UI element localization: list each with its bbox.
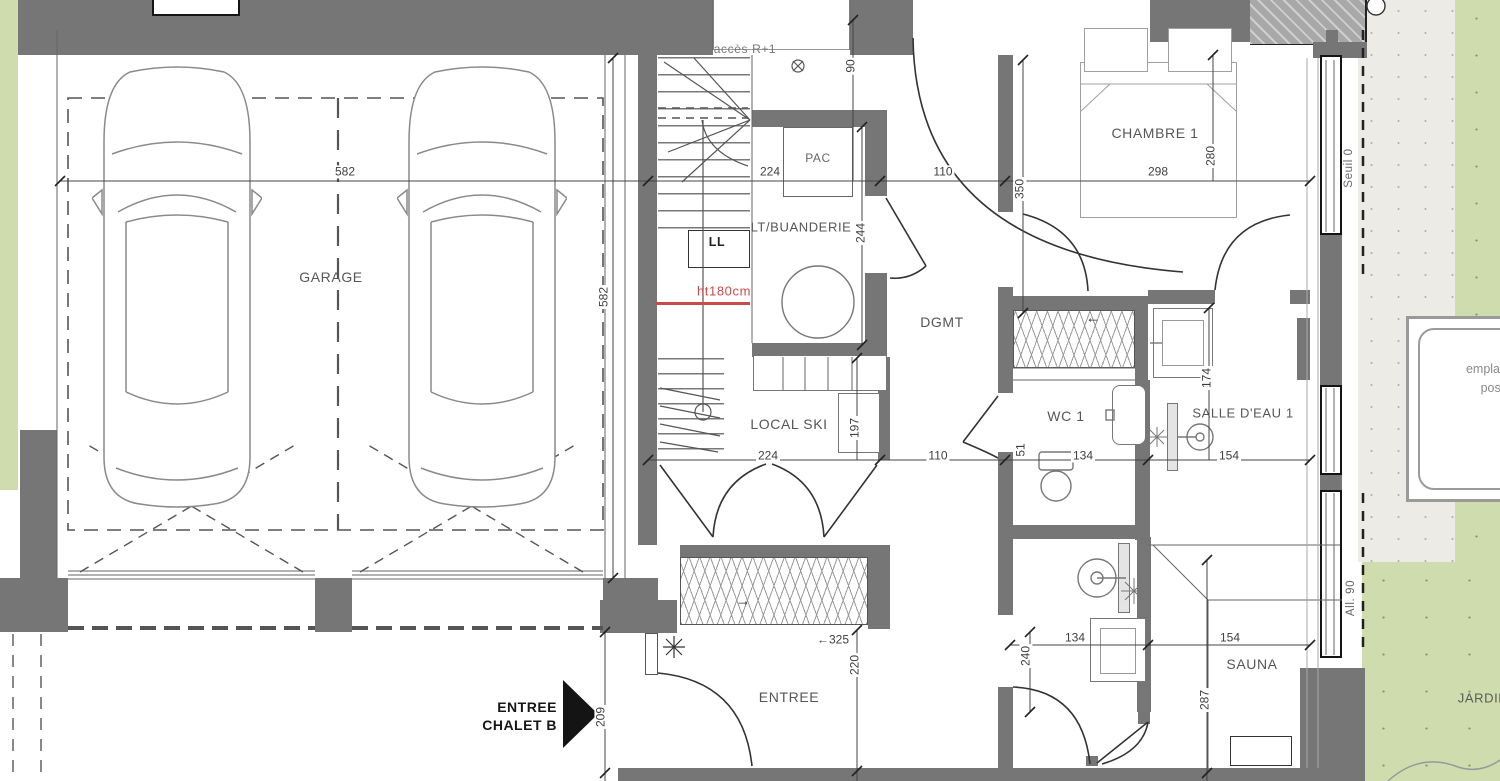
- dim-hall-top: 110: [931, 165, 954, 178]
- floor-plan: emplacement possible o: [0, 0, 1500, 781]
- door-frame: [645, 633, 658, 675]
- wall: [1320, 235, 1342, 385]
- dim-sdb-depth: 174: [1200, 366, 1213, 390]
- window-bay: [152, 0, 240, 16]
- entrance-label-line2: CHALET B: [432, 716, 557, 734]
- wall: [998, 452, 1013, 615]
- staircase-lower: [658, 358, 724, 458]
- wall: [865, 273, 887, 350]
- corridor-closet: [1013, 310, 1135, 368]
- entrance-label-line1: ENTREE: [432, 698, 557, 716]
- dim-hall-bottom: 110: [926, 449, 949, 462]
- wall-closet-top: [1013, 296, 1148, 310]
- ski-shelf: [753, 355, 887, 391]
- dim-drive: 209: [594, 705, 607, 729]
- dim-garage-depth: 582: [597, 285, 610, 309]
- wall: [680, 545, 890, 557]
- allege-label: All. 90: [1345, 580, 1357, 616]
- wall: [1300, 668, 1365, 781]
- wall: [18, 0, 713, 55]
- note-line: possible: [1481, 379, 1500, 398]
- dim-buanderie-depth: 244: [854, 221, 867, 245]
- room-label-garage: GARAGE: [299, 269, 363, 285]
- bath-mirror: [1100, 628, 1136, 674]
- wall: [868, 557, 890, 629]
- dim-garage-width: 582: [333, 165, 357, 178]
- seuil-label: Seuil 0: [1343, 148, 1355, 187]
- wall: [850, 0, 913, 55]
- wall-pier: [1297, 318, 1310, 380]
- room-label-local-ski: LOCAL SKI: [750, 416, 827, 432]
- note-box: emplacement possible o: [1406, 316, 1500, 502]
- dim-door-top: 90: [844, 57, 857, 74]
- shower-glass: [1118, 543, 1130, 613]
- sdb-sink: [1162, 320, 1204, 366]
- room-label-entree: ENTREE: [759, 689, 819, 705]
- dim-ski-depth: 197: [848, 416, 861, 440]
- wall: [1290, 290, 1310, 304]
- pillow: [1084, 28, 1148, 72]
- dim-ski-width: 224: [756, 449, 780, 462]
- arrow-right-icon: →: [736, 593, 751, 610]
- shower-glass: [1167, 403, 1178, 471]
- staircase-upper: [658, 57, 750, 235]
- wall: [1326, 30, 1338, 44]
- dim-wc-width: 134: [1071, 449, 1095, 462]
- dim-buanderie-width: 224: [758, 165, 782, 178]
- room-label-buanderie: LT/BUANDERIE: [751, 220, 852, 235]
- window-salle-eau: [1320, 385, 1342, 475]
- wall: [0, 578, 68, 632]
- height-limit-line: [655, 302, 750, 305]
- ll-label: LL: [709, 235, 725, 249]
- wall: [20, 430, 57, 578]
- room-label-wc1: WC 1: [1047, 408, 1084, 424]
- grass-bottom-right: [1362, 562, 1500, 781]
- height-limit-label: ht180cm: [697, 284, 751, 299]
- dim-chambre-depth: 280: [1204, 144, 1217, 168]
- dim-bath-depth: 240: [1019, 644, 1032, 668]
- dim-chambre-width: 298: [1146, 165, 1170, 178]
- dim-entree-depth: 220: [848, 653, 861, 677]
- dim-wc-offset: 51: [1014, 441, 1027, 458]
- wall: [638, 55, 657, 545]
- wall: [865, 110, 887, 196]
- window-chambre: [1320, 55, 1342, 235]
- arrow-left-icon: ←: [1086, 310, 1101, 327]
- room-label-sauna: SAUNA: [1226, 656, 1277, 672]
- wall-hatched: [1250, 0, 1367, 45]
- wall: [998, 287, 1013, 393]
- note-box-inner: emplacement possible o: [1418, 328, 1500, 490]
- dim-sauna-width: 154: [1218, 631, 1242, 644]
- acces-label: accès R+1: [714, 42, 776, 56]
- dim-sdb-width: 154: [1217, 449, 1241, 462]
- room-label-dgmt: DGMT: [920, 314, 964, 330]
- pillow: [1168, 28, 1232, 72]
- wall: [998, 687, 1013, 781]
- wc-vanity: [1112, 385, 1146, 445]
- wall: [600, 600, 677, 633]
- entrance-label: ENTREE CHALET B: [432, 698, 557, 734]
- pac-label: PAC: [805, 151, 831, 165]
- entree-wardrobe: [680, 557, 868, 625]
- dim-bath-width: 134: [1063, 631, 1087, 644]
- wall: [1013, 525, 1148, 539]
- wall: [998, 55, 1013, 212]
- dim-sauna-depth: 287: [1198, 688, 1211, 712]
- grass-strip-left: [0, 0, 18, 490]
- wall-bottom: [618, 768, 1310, 781]
- door-post: [1086, 756, 1098, 766]
- wall-garage-pillar: [315, 578, 352, 632]
- note-line: emplacement: [1466, 360, 1500, 379]
- dim-closet: ←325: [815, 633, 851, 646]
- dim-corridor: 350: [1013, 177, 1026, 201]
- room-label-salle-eau1: SALLE D'EAU 1: [1192, 406, 1293, 421]
- room-label-chambre1: CHAMBRE 1: [1111, 125, 1198, 141]
- wall: [1135, 296, 1148, 380]
- room-label-jardin: JARDIN: [1458, 691, 1500, 706]
- sauna-bench: [1230, 736, 1292, 766]
- door-post: [1138, 712, 1150, 724]
- window-sauna: [1320, 490, 1342, 658]
- wall: [1148, 290, 1215, 304]
